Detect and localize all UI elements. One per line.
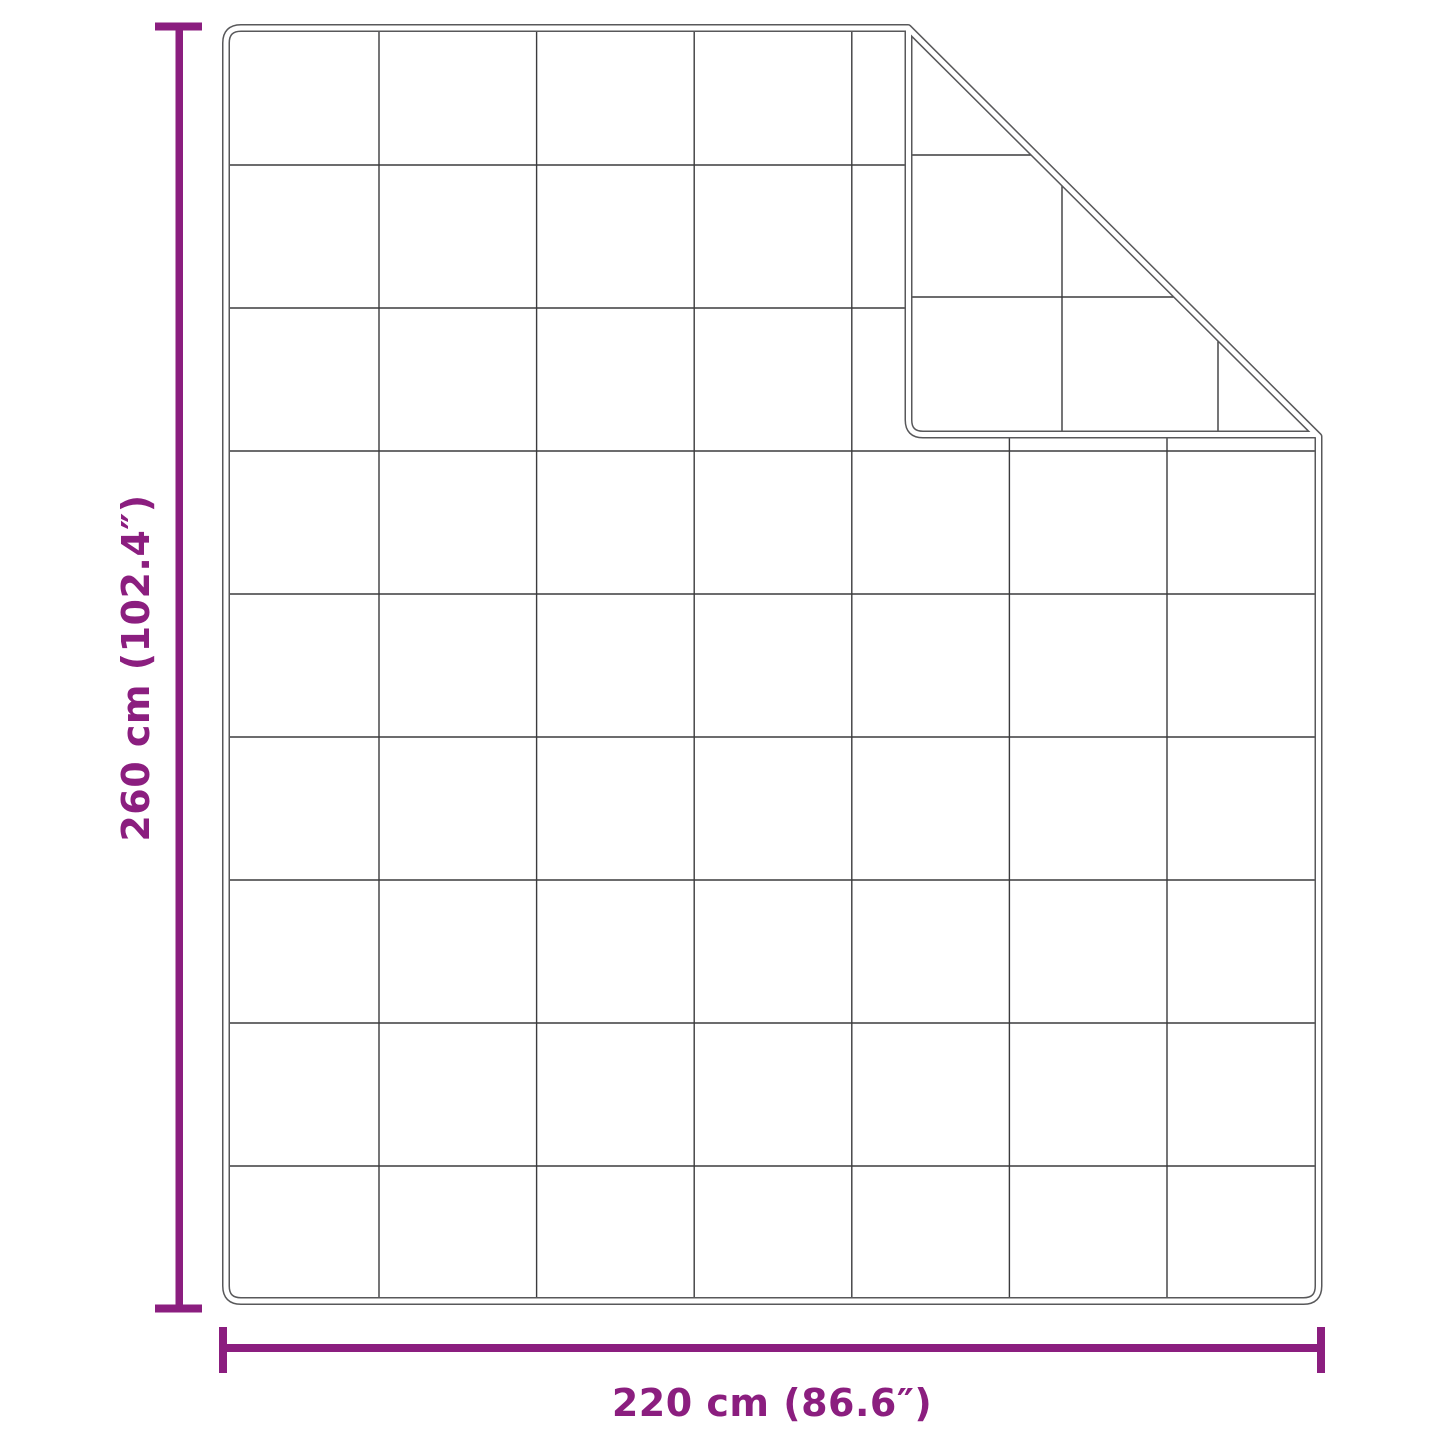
blanket-body: [226, 28, 1319, 1301]
diagram-canvas: 260 cm (102.4″) 220 cm (86.6″): [0, 0, 1445, 1445]
width-dimension: 220 cm (86.6″): [219, 1327, 1325, 1425]
height-dimension-cap-bottom: [155, 1305, 202, 1313]
width-label: 220 cm (86.6″): [612, 1381, 932, 1425]
height-dimension-cap-top: [155, 23, 202, 31]
width-dimension-line: [223, 1344, 1322, 1352]
width-dimension-cap-left: [219, 1327, 227, 1373]
dimension-diagram: 260 cm (102.4″) 220 cm (86.6″): [0, 0, 1445, 1445]
width-dimension-cap-right: [1317, 1327, 1325, 1373]
height-dimension-line: [176, 26, 184, 1309]
blanket: [226, 28, 1319, 1301]
height-dimension: 260 cm (102.4″): [114, 23, 202, 1313]
height-label: 260 cm (102.4″): [114, 494, 158, 841]
